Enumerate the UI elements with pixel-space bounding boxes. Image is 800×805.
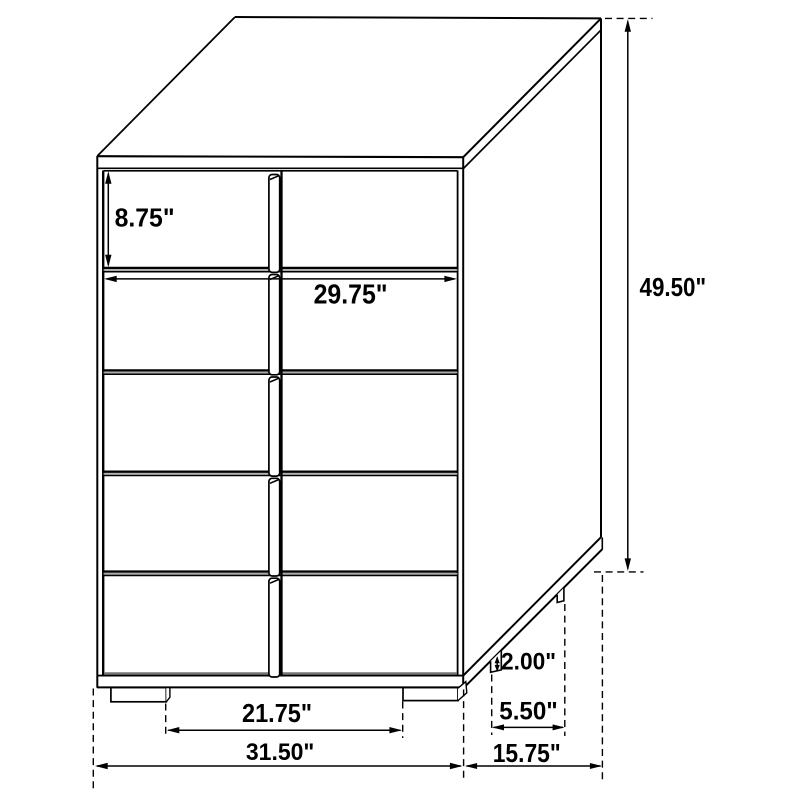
svg-text:29.75": 29.75" (314, 278, 388, 309)
svg-text:5.50": 5.50" (499, 698, 558, 725)
svg-text:21.75": 21.75" (242, 698, 312, 728)
svg-text:8.75": 8.75" (115, 202, 175, 232)
svg-text:15.75": 15.75" (493, 738, 561, 768)
svg-text:49.50": 49.50" (640, 272, 707, 302)
svg-text:2.00": 2.00" (501, 649, 556, 676)
svg-text:31.50": 31.50" (246, 739, 315, 766)
